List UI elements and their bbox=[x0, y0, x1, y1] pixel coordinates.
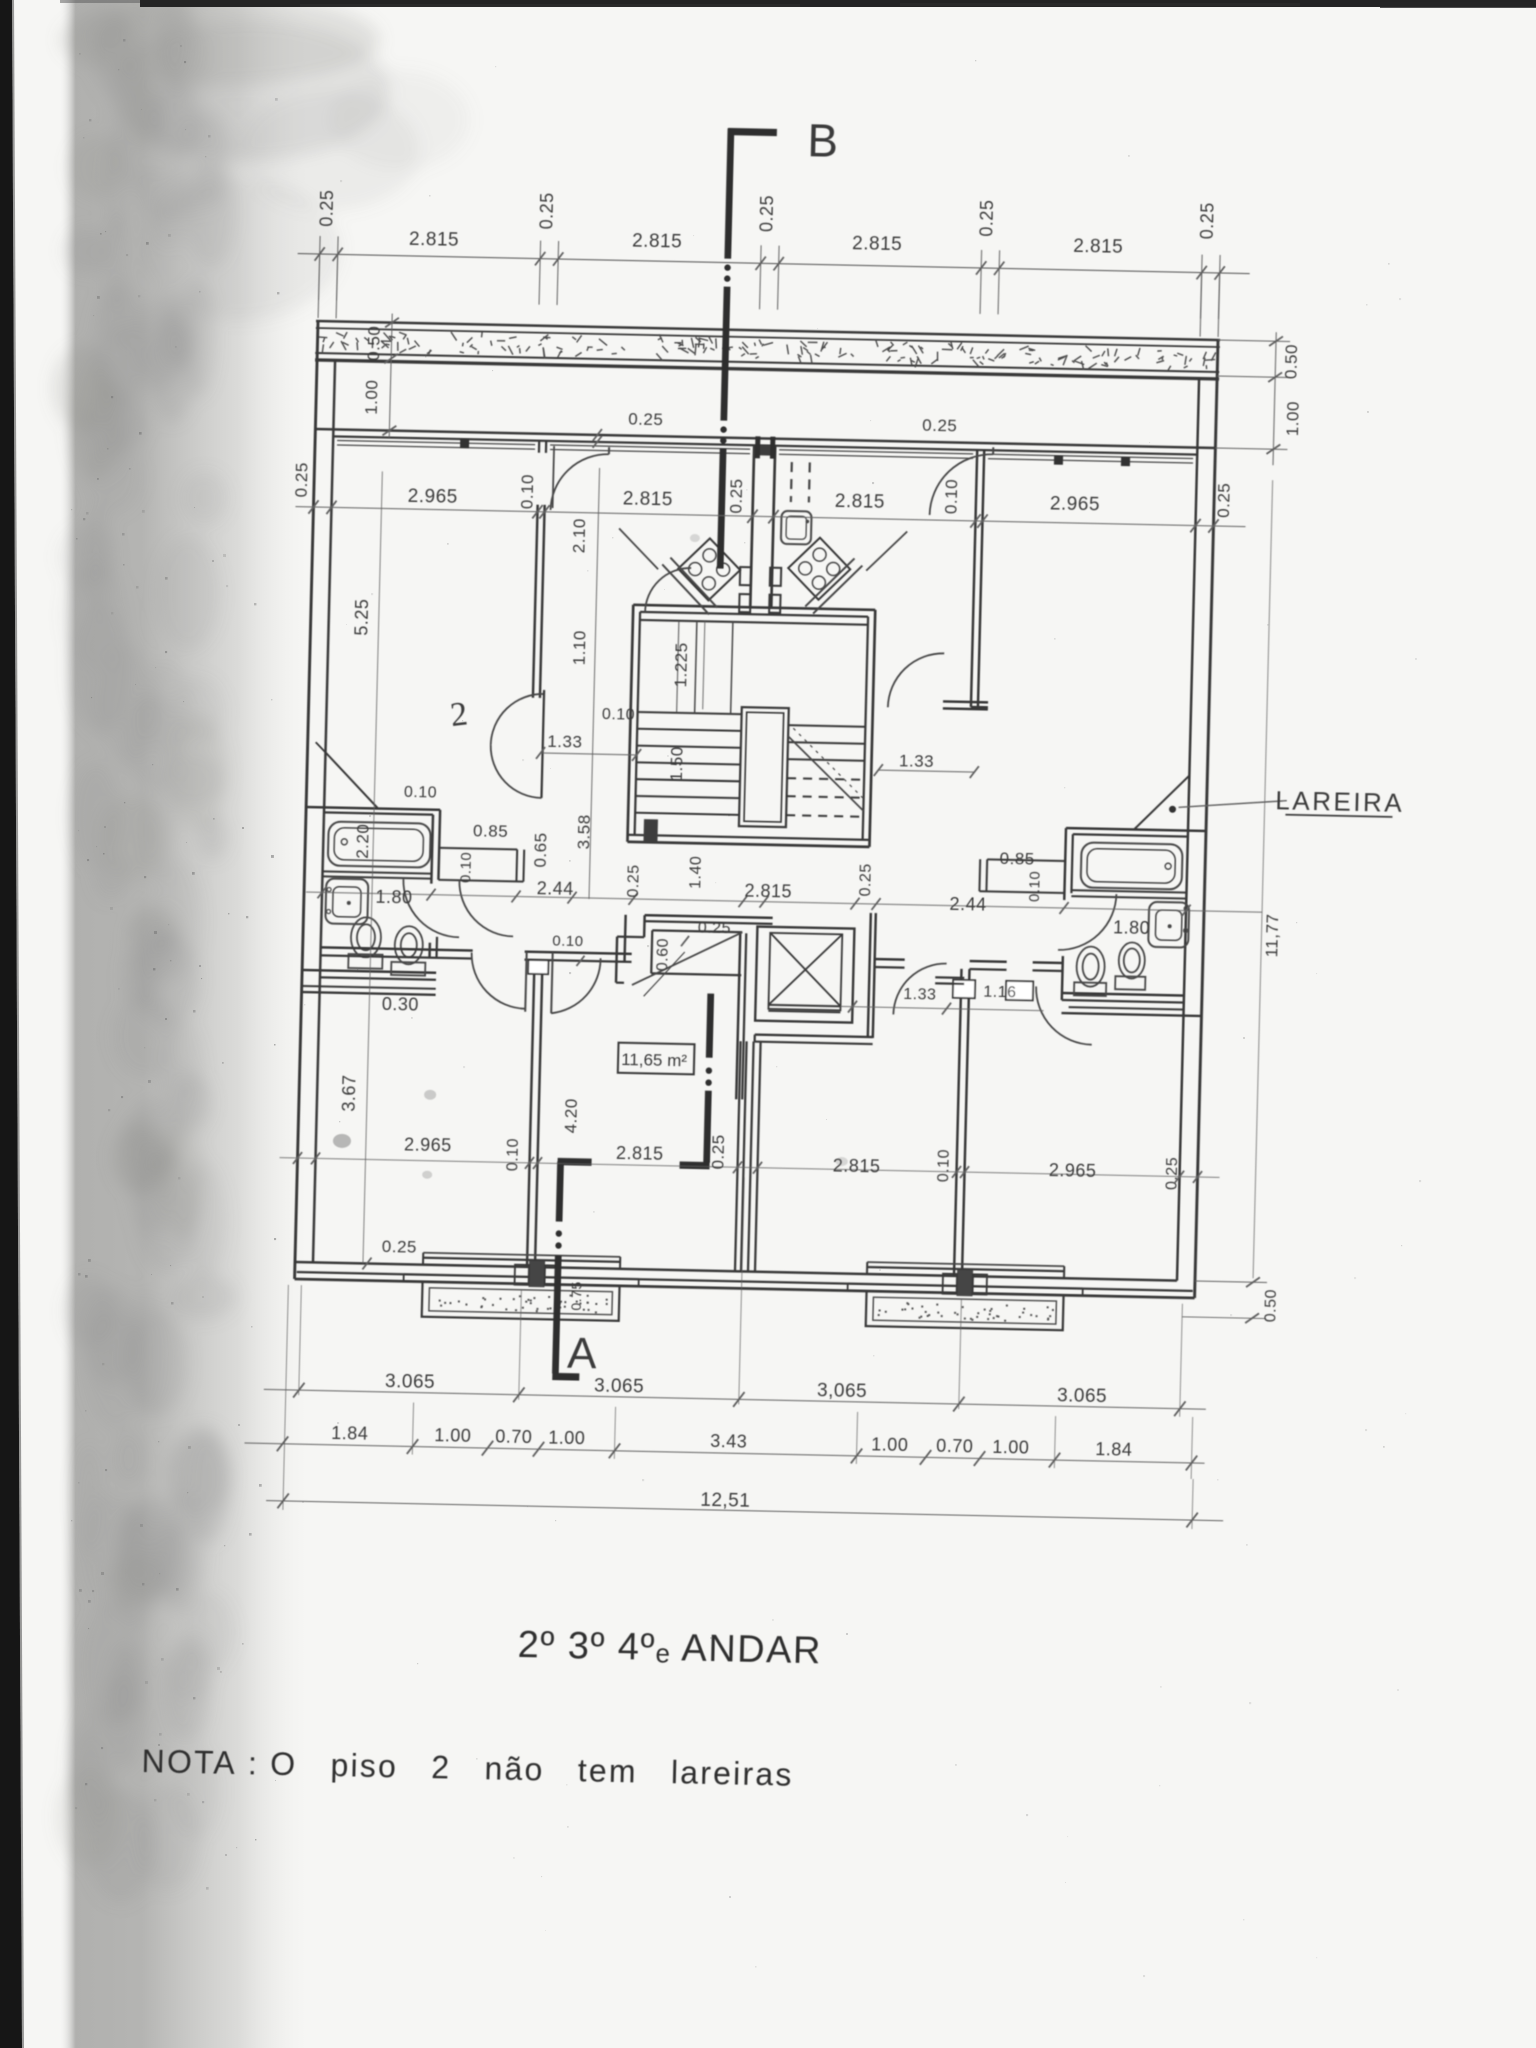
svg-text:0.25: 0.25 bbox=[316, 189, 337, 226]
svg-text:1.10: 1.10 bbox=[570, 630, 590, 665]
svg-text:1.33: 1.33 bbox=[903, 986, 937, 1004]
svg-text:0.50: 0.50 bbox=[1262, 1289, 1280, 1323]
svg-text:1.80: 1.80 bbox=[375, 887, 413, 908]
svg-text:0.25: 0.25 bbox=[857, 863, 875, 897]
svg-text:0.60: 0.60 bbox=[654, 938, 672, 972]
svg-text:2.44: 2.44 bbox=[537, 878, 575, 899]
svg-text:0.50: 0.50 bbox=[364, 325, 384, 360]
svg-text:3.065: 3.065 bbox=[594, 1375, 645, 1397]
svg-text:0.25: 0.25 bbox=[625, 864, 643, 898]
svg-text:2.815: 2.815 bbox=[835, 491, 886, 513]
svg-text:11,77: 11,77 bbox=[1262, 913, 1282, 957]
svg-text:1.84: 1.84 bbox=[1095, 1439, 1133, 1460]
svg-text:LAREIRA: LAREIRA bbox=[1275, 785, 1404, 818]
svg-text:0.75: 0.75 bbox=[568, 1281, 585, 1311]
svg-text:3.065: 3.065 bbox=[385, 1371, 436, 1393]
svg-text:0.30: 0.30 bbox=[382, 994, 420, 1015]
svg-text:1.50: 1.50 bbox=[667, 746, 687, 781]
svg-text:2.815: 2.815 bbox=[632, 231, 683, 253]
svg-text:3.065: 3.065 bbox=[1057, 1385, 1108, 1407]
svg-text:0.25: 0.25 bbox=[292, 462, 312, 497]
svg-text:0.10: 0.10 bbox=[1026, 871, 1044, 903]
svg-text:0.25: 0.25 bbox=[698, 919, 732, 937]
svg-text:1.00: 1.00 bbox=[434, 1425, 472, 1446]
svg-text:2.815: 2.815 bbox=[852, 233, 903, 255]
svg-text:A: A bbox=[567, 1329, 598, 1379]
svg-text:1.16: 1.16 bbox=[983, 983, 1017, 1001]
svg-text:11,65 m²: 11,65 m² bbox=[621, 1050, 688, 1070]
svg-text:0.50: 0.50 bbox=[1281, 344, 1301, 379]
svg-text:3.67: 3.67 bbox=[339, 1074, 360, 1111]
svg-text:2.815: 2.815 bbox=[744, 880, 792, 901]
svg-text:0.25: 0.25 bbox=[1197, 202, 1218, 239]
svg-text:0.10: 0.10 bbox=[935, 1149, 953, 1183]
svg-text:0.85: 0.85 bbox=[999, 849, 1035, 869]
svg-text:3.43: 3.43 bbox=[710, 1431, 748, 1452]
svg-text:2º 3º 4ºₑ ANDAR: 2º 3º 4ºₑ ANDAR bbox=[517, 1624, 822, 1672]
svg-text:0.25: 0.25 bbox=[1163, 1157, 1181, 1191]
svg-text:1.00: 1.00 bbox=[1283, 401, 1303, 436]
svg-text:0.25: 0.25 bbox=[536, 192, 557, 229]
svg-text:2.815: 2.815 bbox=[616, 1143, 664, 1164]
svg-text:1.225: 1.225 bbox=[671, 642, 691, 687]
svg-text:2.44: 2.44 bbox=[949, 894, 987, 915]
svg-text:2.815: 2.815 bbox=[623, 489, 674, 511]
svg-text:0.25: 0.25 bbox=[727, 478, 747, 513]
svg-text:3,065: 3,065 bbox=[817, 1380, 868, 1402]
svg-text:2.815: 2.815 bbox=[1073, 236, 1124, 258]
svg-text:0.25: 0.25 bbox=[382, 1237, 418, 1257]
svg-text:0.70: 0.70 bbox=[495, 1426, 533, 1447]
svg-text:0.10: 0.10 bbox=[457, 852, 475, 884]
svg-text:0.10: 0.10 bbox=[942, 479, 962, 514]
svg-text:1.00: 1.00 bbox=[992, 1437, 1030, 1458]
svg-text:1.40: 1.40 bbox=[687, 856, 705, 890]
svg-text:B: B bbox=[807, 114, 839, 167]
svg-text:2.965: 2.965 bbox=[1050, 494, 1101, 516]
svg-text:1.00: 1.00 bbox=[548, 1427, 586, 1448]
svg-text:0.25: 0.25 bbox=[756, 195, 777, 232]
svg-text:0.25: 0.25 bbox=[922, 416, 958, 436]
svg-text:0.10: 0.10 bbox=[404, 784, 438, 802]
svg-text:2.10: 2.10 bbox=[569, 518, 589, 553]
svg-text:1.00: 1.00 bbox=[871, 1434, 909, 1455]
svg-text:0.10: 0.10 bbox=[602, 706, 636, 724]
svg-text:0.25: 0.25 bbox=[1214, 482, 1234, 517]
svg-text:0.25: 0.25 bbox=[628, 410, 664, 430]
svg-text:2.20: 2.20 bbox=[353, 823, 373, 858]
svg-text:0.10: 0.10 bbox=[504, 1138, 522, 1172]
svg-text:1.00: 1.00 bbox=[362, 379, 382, 414]
svg-text:2.965: 2.965 bbox=[408, 486, 459, 508]
svg-text:0.10: 0.10 bbox=[518, 474, 538, 509]
svg-text:2.965: 2.965 bbox=[1049, 1160, 1097, 1181]
svg-text:0.65: 0.65 bbox=[531, 832, 551, 867]
svg-text:0.25: 0.25 bbox=[976, 199, 997, 236]
svg-text:4.20: 4.20 bbox=[561, 1098, 581, 1133]
svg-text:0.70: 0.70 bbox=[936, 1436, 974, 1457]
svg-text:1.33: 1.33 bbox=[899, 751, 935, 771]
svg-text:0.85: 0.85 bbox=[473, 822, 509, 842]
svg-text:1.84: 1.84 bbox=[331, 1423, 369, 1444]
svg-text:2.815: 2.815 bbox=[409, 229, 460, 251]
svg-text:0.25: 0.25 bbox=[708, 1134, 728, 1169]
svg-text:2.965: 2.965 bbox=[404, 1134, 452, 1155]
svg-text:12,51: 12,51 bbox=[700, 1490, 751, 1512]
svg-text:5.25: 5.25 bbox=[351, 598, 372, 635]
svg-text:0.10: 0.10 bbox=[552, 932, 584, 950]
svg-text:3.58: 3.58 bbox=[574, 814, 594, 849]
svg-text:1.33: 1.33 bbox=[547, 732, 583, 752]
svg-text:1.80: 1.80 bbox=[1113, 917, 1151, 938]
